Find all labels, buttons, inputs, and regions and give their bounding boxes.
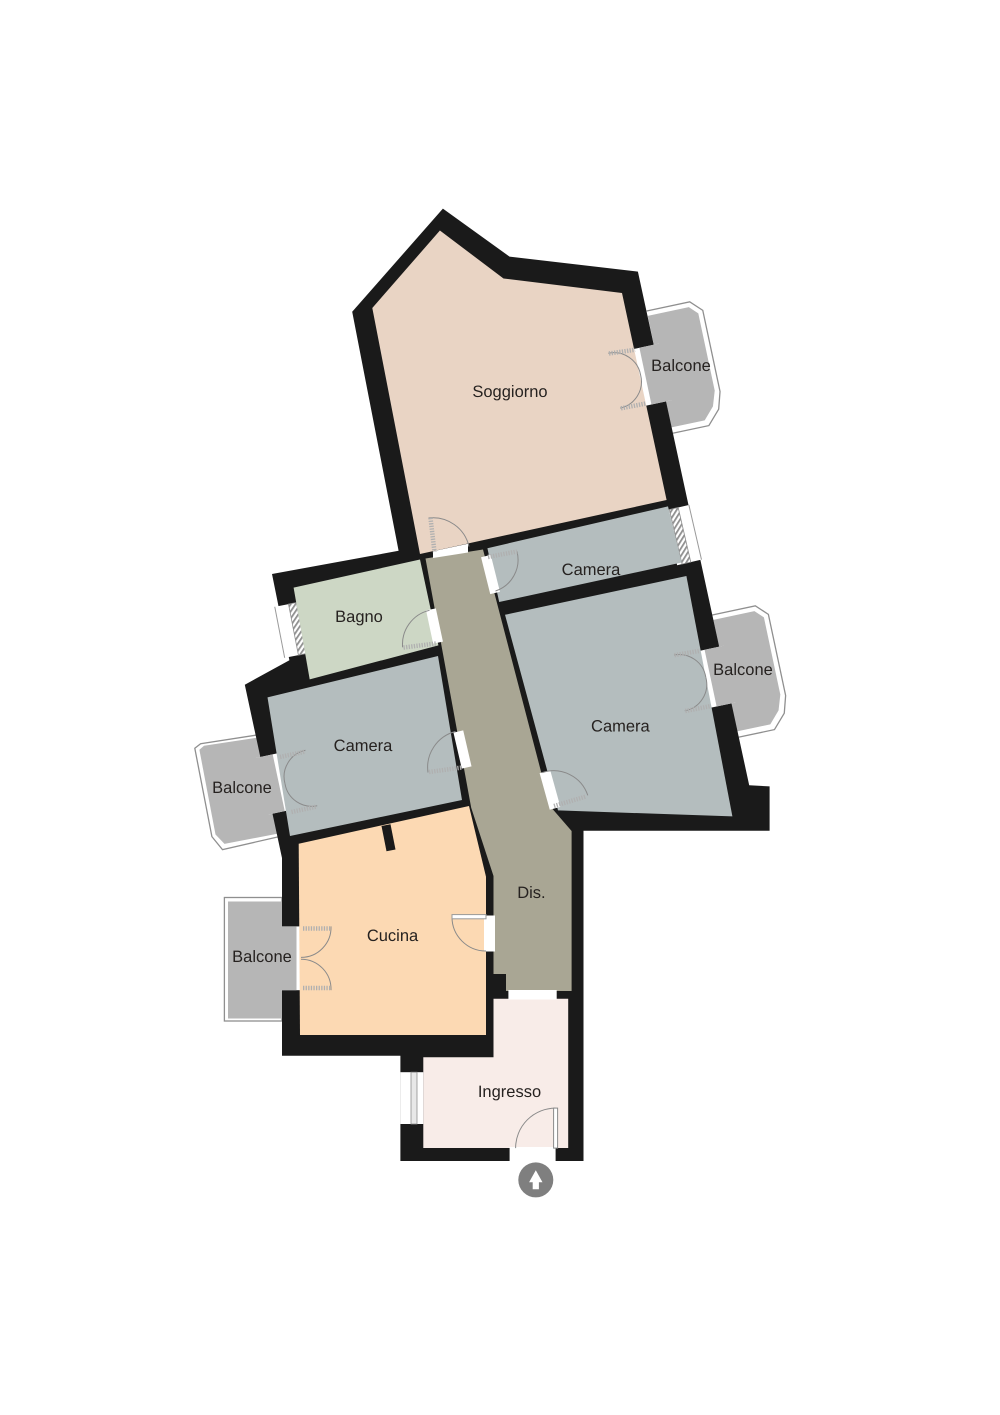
svg-text:Cucina: Cucina [367, 927, 419, 945]
svg-text:Balcone: Balcone [232, 948, 292, 966]
svg-text:Camera: Camera [562, 561, 622, 579]
svg-text:Balcone: Balcone [212, 779, 272, 797]
svg-text:Balcone: Balcone [651, 357, 711, 375]
svg-text:Bagno: Bagno [335, 608, 383, 626]
svg-text:Camera: Camera [591, 718, 651, 736]
svg-text:Soggiorno: Soggiorno [472, 383, 547, 401]
svg-text:Dis.: Dis. [517, 884, 545, 902]
svg-text:Balcone: Balcone [713, 661, 773, 679]
svg-text:Ingresso: Ingresso [478, 1083, 541, 1101]
svg-text:Camera: Camera [334, 737, 394, 755]
